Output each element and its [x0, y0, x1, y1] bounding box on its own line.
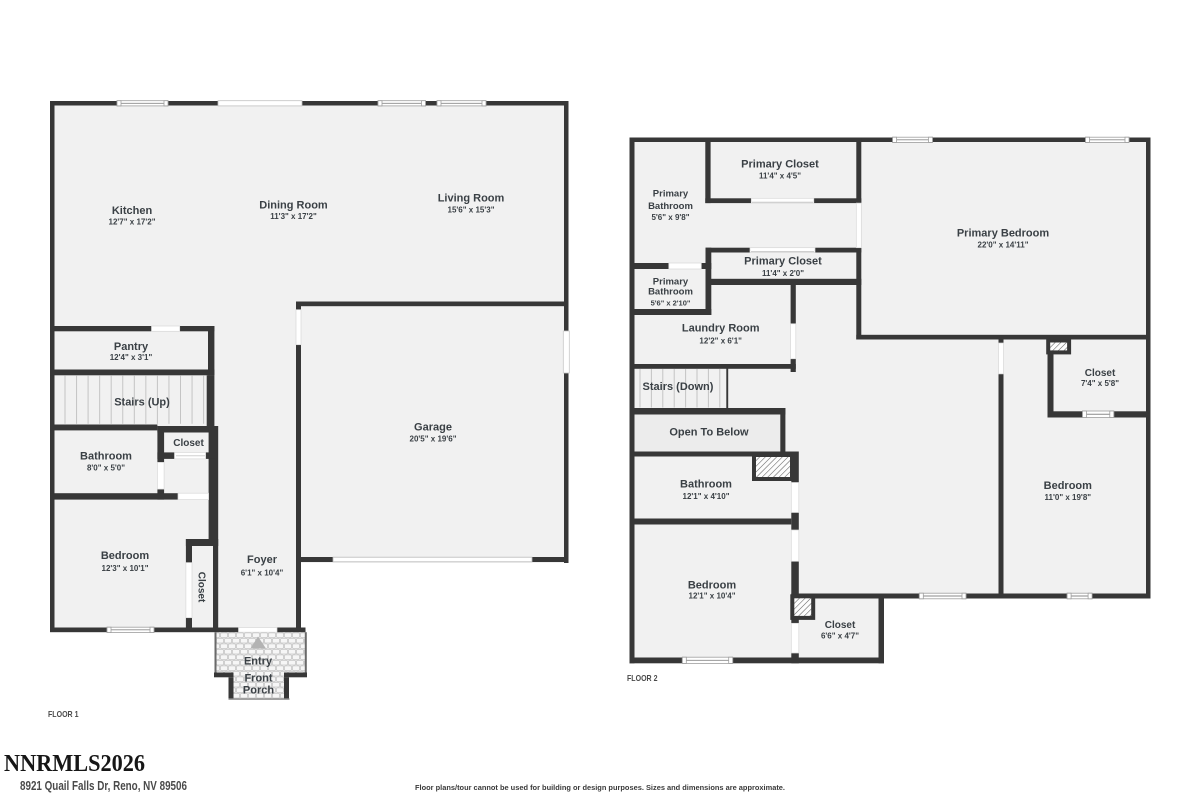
svg-text:11'3" x 17'2": 11'3" x 17'2"	[270, 212, 317, 221]
svg-text:12'7" x 17'2": 12'7" x 17'2"	[109, 218, 156, 227]
svg-text:11'4" x 4'5": 11'4" x 4'5"	[759, 172, 801, 181]
svg-text:Stairs (Up): Stairs (Up)	[114, 397, 170, 409]
svg-text:Entry: Entry	[244, 656, 273, 668]
svg-text:Floor plans/tour cannot be use: Floor plans/tour cannot be used for buil…	[415, 785, 785, 792]
svg-text:Kitchen: Kitchen	[112, 205, 153, 217]
svg-text:11'4" x 2'0": 11'4" x 2'0"	[762, 269, 804, 278]
svg-text:Bedroom: Bedroom	[101, 550, 150, 562]
svg-text:12'3" x 10'1": 12'3" x 10'1"	[102, 564, 149, 573]
svg-text:Bathroom: Bathroom	[80, 451, 132, 463]
svg-text:Garage: Garage	[414, 422, 452, 434]
svg-text:FLOOR 1: FLOOR 1	[48, 709, 79, 719]
svg-text:Foyer: Foyer	[247, 554, 278, 566]
svg-text:6'1" x 10'4": 6'1" x 10'4"	[241, 569, 284, 578]
svg-text:Bathroom: Bathroom	[648, 287, 693, 298]
svg-text:12'1" x 4'10": 12'1" x 4'10"	[683, 492, 730, 501]
svg-text:Stairs (Down): Stairs (Down)	[643, 381, 714, 393]
svg-text:5'6" x 9'8": 5'6" x 9'8"	[651, 213, 689, 222]
svg-text:22'0" x 14'11": 22'0" x 14'11"	[978, 240, 1029, 249]
svg-text:Closet: Closet	[825, 620, 856, 631]
svg-text:Bathroom: Bathroom	[648, 201, 693, 212]
svg-text:7'4" x 5'8": 7'4" x 5'8"	[1081, 379, 1119, 388]
svg-text:8'0" x 5'0": 8'0" x 5'0"	[87, 464, 125, 473]
svg-text:Living Room: Living Room	[438, 193, 505, 205]
svg-text:Dining Room: Dining Room	[259, 200, 328, 212]
svg-text:Primary Closet: Primary Closet	[741, 159, 819, 171]
svg-text:Bedroom: Bedroom	[688, 580, 737, 592]
svg-text:15'6" x 15'3": 15'6" x 15'3"	[448, 206, 495, 215]
svg-text:NNRMLS2026: NNRMLS2026	[4, 751, 145, 777]
svg-text:Open To Below: Open To Below	[669, 427, 749, 439]
svg-text:20'5" x 19'6": 20'5" x 19'6"	[410, 435, 457, 444]
svg-text:5'6" x 2'10": 5'6" x 2'10"	[651, 299, 691, 308]
svg-text:12'4" x 3'1": 12'4" x 3'1"	[110, 353, 153, 362]
svg-text:Primary: Primary	[653, 188, 689, 199]
svg-text:12'1" x 10'4": 12'1" x 10'4"	[689, 592, 736, 601]
svg-text:Primary Closet: Primary Closet	[744, 256, 822, 268]
svg-text:Laundry Room: Laundry Room	[682, 323, 760, 335]
svg-text:Front: Front	[244, 673, 272, 685]
svg-text:Porch: Porch	[243, 685, 274, 697]
svg-text:Closet: Closet	[173, 438, 204, 449]
svg-text:Primary Bedroom: Primary Bedroom	[957, 228, 1050, 240]
svg-text:8921 Quail Falls Dr, Reno, NV: 8921 Quail Falls Dr, Reno, NV 89506	[20, 779, 187, 793]
svg-text:Closet: Closet	[1085, 368, 1116, 379]
svg-text:12'2" x 6'1": 12'2" x 6'1"	[699, 337, 742, 346]
svg-text:6'6" x 4'7": 6'6" x 4'7"	[821, 632, 859, 641]
svg-text:11'0" x 19'8": 11'0" x 19'8"	[1045, 493, 1092, 502]
svg-text:Closet: Closet	[196, 572, 207, 603]
svg-text:Bedroom: Bedroom	[1044, 480, 1093, 492]
svg-text:Pantry: Pantry	[114, 341, 149, 353]
svg-text:Bathroom: Bathroom	[680, 479, 732, 491]
svg-text:FLOOR 2: FLOOR 2	[627, 673, 658, 683]
